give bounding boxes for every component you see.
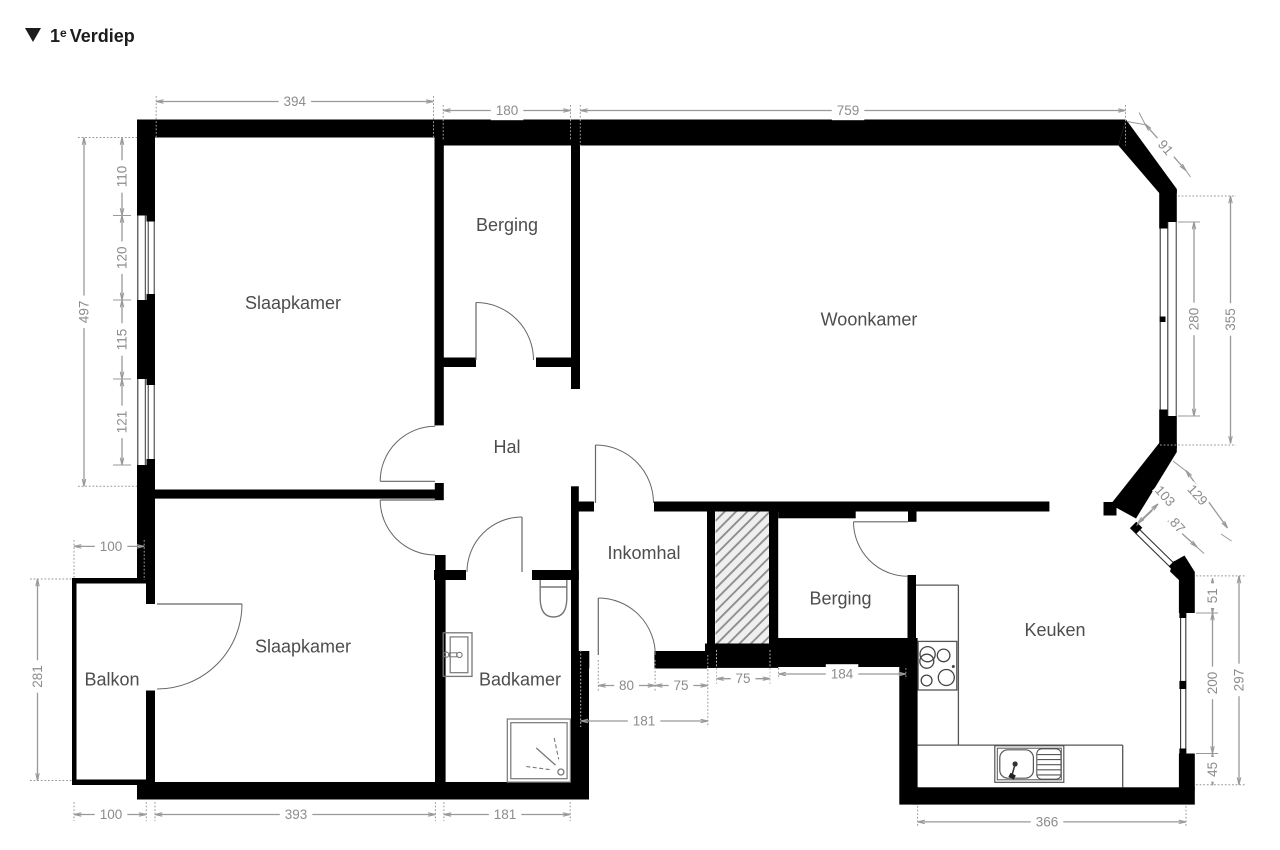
svg-text:497: 497 [77, 301, 92, 324]
svg-text:75: 75 [673, 678, 688, 693]
svg-text:110: 110 [115, 166, 130, 188]
svg-text:115: 115 [115, 329, 130, 351]
svg-text:366: 366 [1036, 814, 1059, 829]
svg-text:Badkamer: Badkamer [479, 670, 561, 690]
svg-text:Berging: Berging [809, 589, 871, 609]
svg-text:121: 121 [115, 411, 130, 434]
svg-text:280: 280 [1187, 308, 1202, 331]
svg-text:281: 281 [30, 665, 45, 688]
svg-text:180: 180 [496, 103, 519, 118]
svg-text:Berging: Berging [476, 215, 538, 235]
svg-text:80: 80 [619, 678, 634, 693]
svg-text:Inkomhal: Inkomhal [607, 543, 680, 563]
svg-text:Hal: Hal [493, 437, 520, 457]
svg-text:45: 45 [1205, 762, 1220, 777]
svg-text:Woonkamer: Woonkamer [821, 310, 918, 330]
svg-text:120: 120 [115, 246, 130, 269]
svg-text:394: 394 [284, 94, 307, 109]
svg-text:Slaapkamer: Slaapkamer [245, 293, 341, 313]
svg-text:Balkon: Balkon [84, 670, 139, 690]
svg-text:759: 759 [837, 103, 860, 118]
svg-text:75: 75 [735, 671, 750, 686]
svg-text:200: 200 [1205, 672, 1220, 695]
svg-text:297: 297 [1232, 669, 1247, 692]
svg-text:Keuken: Keuken [1024, 620, 1085, 640]
svg-text:393: 393 [285, 807, 308, 822]
svg-text:51: 51 [1205, 588, 1220, 603]
svg-text:100: 100 [100, 807, 123, 822]
svg-text:181: 181 [494, 807, 517, 822]
svg-text:184: 184 [831, 667, 854, 682]
svg-text:Slaapkamer: Slaapkamer [255, 637, 351, 657]
svg-text:100: 100 [100, 539, 123, 554]
svg-text:181: 181 [633, 714, 656, 729]
svg-text:355: 355 [1223, 308, 1238, 331]
